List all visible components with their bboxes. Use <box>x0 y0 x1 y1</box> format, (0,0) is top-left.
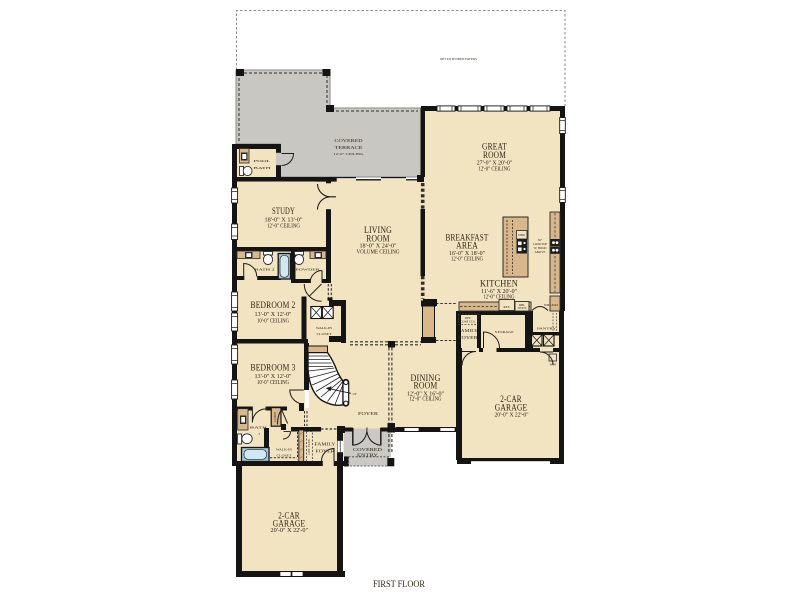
svg-text:TERRACE: TERRACE <box>335 145 363 150</box>
svg-text:COAT CLS.: COAT CLS. <box>460 320 476 324</box>
svg-text:20'-0" X 22'-0": 20'-0" X 22'-0" <box>495 412 530 418</box>
svg-text:BEDROOM 3: BEDROOM 3 <box>251 364 296 374</box>
svg-text:PANTRY: PANTRY <box>537 327 557 331</box>
svg-text:LINEN: LINEN <box>273 412 277 422</box>
svg-text:OVEN: OVEN <box>518 306 528 310</box>
svg-text:BATH: BATH <box>254 166 272 170</box>
svg-text:FOYER: FOYER <box>316 448 336 453</box>
svg-text:ROOM: ROOM <box>414 382 438 392</box>
svg-text:POWDER: POWDER <box>296 267 322 271</box>
svg-text:12'-0" CEILING: 12'-0" CEILING <box>410 397 443 403</box>
svg-text:FOYER: FOYER <box>458 335 479 340</box>
svg-text:SINK: SINK <box>518 233 526 237</box>
svg-text:OPT. ELEV.: OPT. ELEV. <box>307 438 311 454</box>
svg-text:FIRST FLOOR: FIRST FLOOR <box>373 579 425 589</box>
svg-text:STUDY: STUDY <box>272 207 295 217</box>
svg-text:W/H: W/H <box>550 363 557 367</box>
svg-text:BATH: BATH <box>250 426 268 430</box>
svg-text:WALK-IN: WALK-IN <box>276 448 293 452</box>
svg-text:12'-0" CEILING: 12'-0" CEILING <box>267 224 301 230</box>
svg-text:12'-0" CEILING: 12'-0" CEILING <box>479 167 512 173</box>
svg-text:COVERED: COVERED <box>335 138 364 143</box>
svg-text:POOL: POOL <box>254 159 271 163</box>
svg-text:COVERED: COVERED <box>353 447 383 452</box>
svg-text:FOYER: FOYER <box>358 411 379 416</box>
svg-text:10'-0" CEILING: 10'-0" CEILING <box>257 319 290 325</box>
svg-text:ABOVE: ABOVE <box>535 250 546 254</box>
svg-text:CLOSET: CLOSET <box>277 453 292 457</box>
svg-text:BEDROOM 2: BEDROOM 2 <box>251 301 296 311</box>
svg-text:WALK-IN: WALK-IN <box>316 326 333 330</box>
svg-text:FAMILY: FAMILY <box>315 441 337 446</box>
svg-text:REF.: REF. <box>504 305 511 309</box>
svg-text:12'-0" CEILING: 12'-0" CEILING <box>334 152 365 156</box>
svg-text:ROOM: ROOM <box>483 151 506 161</box>
svg-text:KITCHEN: KITCHEN <box>480 280 518 290</box>
svg-text:FAMILY: FAMILY <box>458 328 479 333</box>
svg-text:10'-0" CEILING: 10'-0" CEILING <box>257 380 290 386</box>
svg-text:ENTRY: ENTRY <box>357 453 379 458</box>
svg-text:12'-0" CEILING: 12'-0" CEILING <box>484 295 516 301</box>
svg-text:VOLUME CEILING: VOLUME CEILING <box>357 250 401 256</box>
svg-text:20'-0" X 22'-0": 20'-0" X 22'-0" <box>271 528 309 534</box>
svg-text:OPT EXTENDED PAVERS: OPT EXTENDED PAVERS <box>440 57 477 61</box>
svg-text:13'-0" X 12'-0": 13'-0" X 12'-0" <box>255 312 293 318</box>
svg-text:18'-0" X 13'-0": 18'-0" X 13'-0" <box>265 217 304 223</box>
svg-text:CLOSET: CLOSET <box>317 332 332 336</box>
svg-text:UP: UP <box>352 392 356 396</box>
svg-text:BATH 2: BATH 2 <box>255 267 276 271</box>
svg-text:12'-0" CEILING: 12'-0" CEILING <box>451 257 484 263</box>
svg-text:MICRO: MICRO <box>544 303 559 307</box>
svg-text:STORAGE: STORAGE <box>495 330 514 334</box>
